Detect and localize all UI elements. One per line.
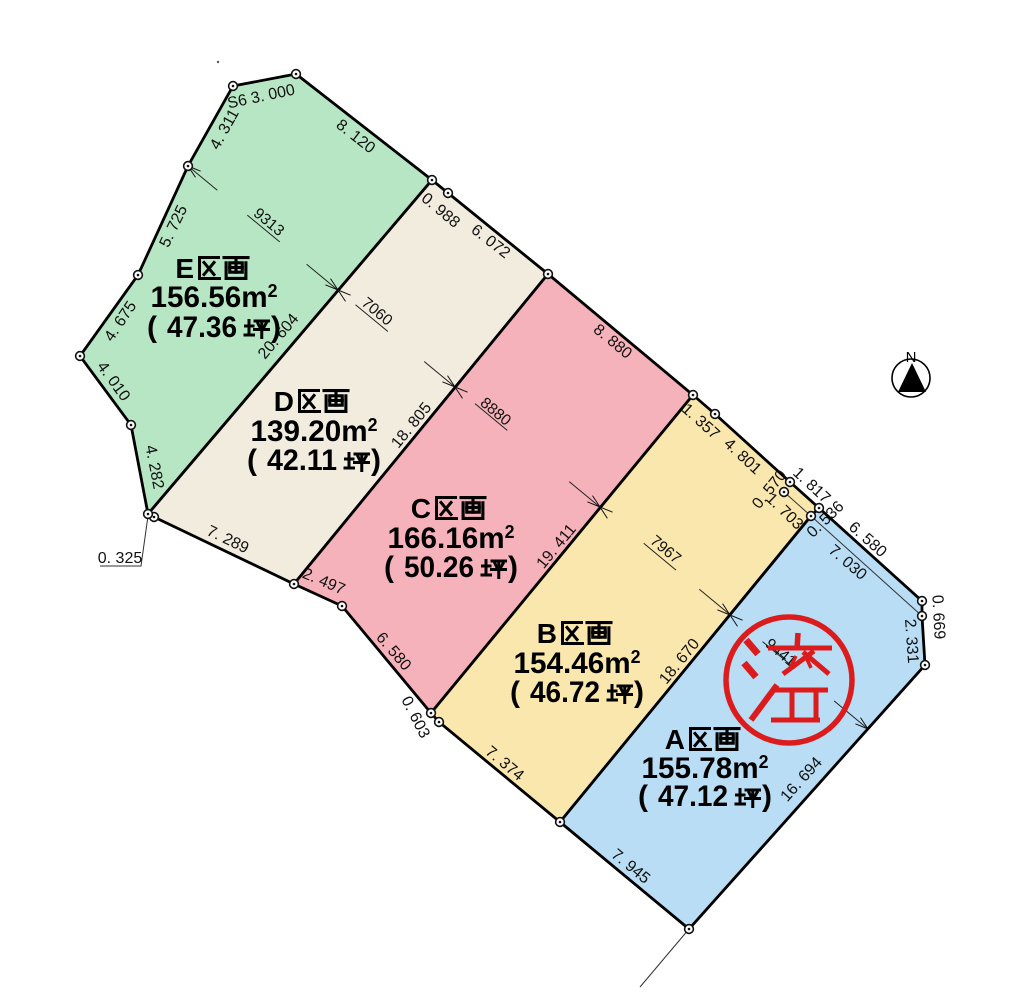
svg-text:47.12: 47.12 — [658, 780, 728, 813]
svg-text:): ) — [371, 444, 381, 477]
svg-text:2. 331: 2. 331 — [901, 618, 921, 664]
svg-text:0. 669: 0. 669 — [928, 594, 947, 639]
svg-text:N: N — [906, 349, 917, 366]
svg-text:(: ( — [247, 444, 257, 477]
svg-text:(: ( — [384, 551, 394, 584]
svg-text:B: B — [537, 618, 557, 649]
svg-text:): ) — [762, 780, 772, 813]
svg-text:): ) — [508, 551, 518, 584]
svg-text:47.36: 47.36 — [167, 311, 237, 344]
svg-text:(: ( — [638, 780, 648, 813]
svg-text:D: D — [274, 386, 294, 417]
svg-text:(: ( — [510, 676, 520, 709]
svg-text:C: C — [411, 493, 431, 524]
svg-text:): ) — [634, 676, 644, 709]
svg-text:42.11: 42.11 — [267, 444, 337, 477]
svg-text:156.56m2: 156.56m2 — [151, 281, 278, 314]
svg-text:0. 325: 0. 325 — [98, 550, 143, 567]
svg-text:): ) — [271, 311, 281, 344]
svg-text:(: ( — [147, 311, 157, 344]
svg-text:A: A — [665, 724, 685, 755]
svg-text:46.72: 46.72 — [530, 676, 600, 709]
svg-text:50.26: 50.26 — [404, 551, 474, 584]
svg-text:E: E — [175, 253, 194, 284]
